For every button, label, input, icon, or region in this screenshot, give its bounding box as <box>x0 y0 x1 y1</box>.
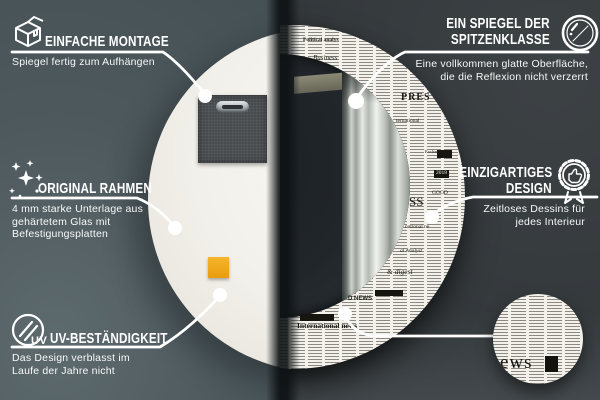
newsprint-word: International news <box>297 322 357 330</box>
newsprint-headline-bar <box>300 314 334 321</box>
product-image[interactable]: Political analys Business ternational PR… <box>0 0 600 400</box>
newsprint-word: GOOD <box>432 191 448 197</box>
mirror-back <box>148 28 280 372</box>
newsprint-word: ternational <box>396 119 420 125</box>
newsprint-word: Exchange rates <box>425 150 452 155</box>
newsprint-headline-bar <box>375 290 403 296</box>
newsprint-word: Political analys <box>303 38 339 44</box>
newsprint-word: 2018 <box>434 170 449 178</box>
detail-ink-mark <box>545 356 558 372</box>
newsprint-word: national ne <box>405 225 429 231</box>
mounting-bracket-slot <box>216 101 249 113</box>
newsprint-word: & digest <box>387 268 413 276</box>
design-detail-magnifier: ews <box>493 294 583 384</box>
newsprint-word: al Analyst <box>400 249 422 255</box>
adhesive-pad <box>208 257 229 278</box>
mounting-plate <box>198 95 267 163</box>
detail-masthead-text: ews <box>500 352 533 374</box>
newsprint-word: SS <box>409 195 423 208</box>
photo-seam-shadow <box>266 0 300 400</box>
reflected-curtain <box>342 64 410 318</box>
left-panel-wall <box>0 0 280 400</box>
newsprint-word: D NEWS <box>348 296 372 302</box>
newsprint-word: PRES <box>401 93 431 103</box>
newsprint-word: Business <box>313 55 338 62</box>
